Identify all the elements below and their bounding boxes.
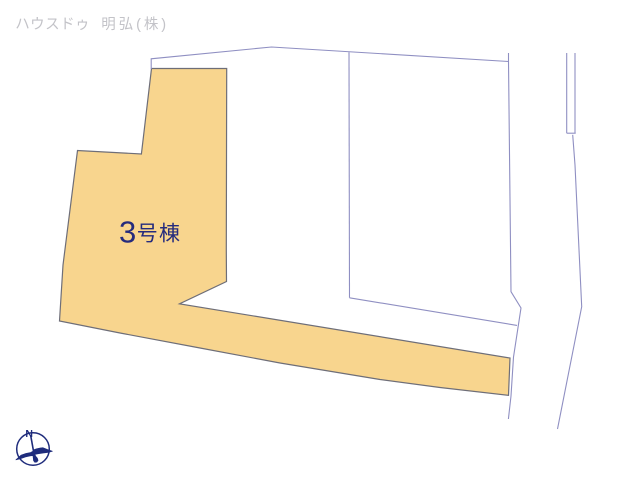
svg-text:N: N [25, 428, 33, 440]
svg-text:ハウスドゥ: ハウスドゥ [15, 16, 90, 33]
svg-text:明弘(株): 明弘(株) [101, 16, 169, 33]
